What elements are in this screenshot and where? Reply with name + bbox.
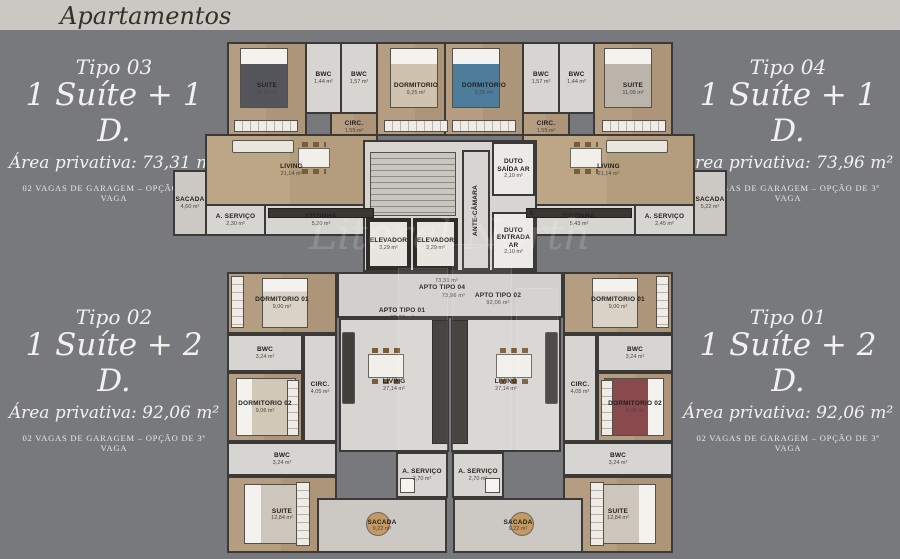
room-bwc-suite-t2: BWC 3,24 m²: [227, 442, 337, 476]
wardrobe: [602, 120, 666, 132]
room-sacada-t2: SACADA 9,22 m²: [317, 498, 447, 553]
room-servico-t4: A. SERVIÇO 2,45 m²: [634, 204, 695, 236]
sofa: [232, 140, 294, 153]
type-config: 1 Suíte + 1 D.: [682, 78, 894, 149]
wardrobe: [287, 380, 299, 436]
type-garage: 02 VAGAS DE GARAGEM – OPÇÃO DE 3ª VAGA: [682, 433, 894, 453]
bed: [240, 48, 288, 108]
bed: [390, 48, 438, 108]
type-name: Tipo 01: [682, 306, 894, 328]
room-sacada-t1: SACADA 9,22 m²: [453, 498, 583, 553]
bed: [452, 48, 500, 108]
type-config: 1 Suíte + 2 D.: [682, 328, 894, 399]
page-title: Apartamentos: [0, 0, 900, 32]
type-name: Tipo 02: [8, 306, 220, 328]
room-bwc-social-t1: BWC 3,24 m²: [597, 334, 673, 372]
type-area: Área privativa: 92,06 m²: [682, 403, 894, 423]
type-name: Tipo 04: [682, 56, 894, 78]
type-config: 1 Suíte + 1 D.: [8, 78, 220, 149]
wardrobe: [590, 482, 604, 546]
bed: [604, 48, 652, 108]
type-block-tipo01: Tipo 01 1 Suíte + 2 D. Área privativa: 9…: [682, 306, 894, 453]
room-circ-t2: CIRC. 4,05 m²: [303, 334, 337, 442]
floor-plan-poster: Apartamentos Tipo 03 1 Suíte + 1 D. Área…: [0, 0, 900, 559]
wardrobe: [452, 120, 516, 132]
room-bwc-suite-t1: BWC 3,24 m²: [563, 442, 673, 476]
watermark-building-bar: [452, 244, 512, 450]
wardrobe: [601, 380, 613, 436]
type-area: Área privativa: 92,06 m²: [8, 403, 220, 423]
wardrobe: [231, 276, 244, 328]
type-block-tipo02: Tipo 02 1 Suíte + 2 D. Área privativa: 9…: [8, 306, 220, 453]
watermark-building-bar: [398, 268, 448, 450]
room-bwc1-t4: BWC 1,57 m²: [522, 42, 560, 114]
type-garage: 02 VAGAS DE GARAGEM – OPÇÃO DE 3ª VAGA: [8, 433, 220, 453]
sofa: [342, 332, 355, 404]
watermark-building-bar: [516, 288, 558, 450]
wardrobe: [384, 120, 448, 132]
wardrobe: [234, 120, 298, 132]
type-config: 1 Suíte + 2 D.: [8, 328, 220, 399]
room-circ-t1: CIRC. 4,05 m²: [563, 334, 597, 442]
wardrobe: [656, 276, 669, 328]
room-sacada-t3: SACADA 4,60 m²: [173, 170, 207, 236]
room-servico-t3: A. SERVIÇO 2,30 m²: [205, 204, 266, 236]
room-bwc1-t3: BWC 1,44 m²: [305, 42, 342, 114]
room-elevador-1: ELEVADOR 3,29 m²: [366, 218, 411, 270]
room-bwc2-t4: BWC 1,44 m²: [558, 42, 595, 114]
room-sacada-t4: SACADA 5,22 m²: [693, 170, 727, 236]
room-duto-saida-ar: DUTO SAÍDA AR 2,10 m²: [492, 142, 535, 196]
type-name: Tipo 03: [8, 56, 220, 78]
room-bwc2-t3: BWC 1,57 m²: [340, 42, 378, 114]
sofa: [606, 140, 668, 153]
wardrobe: [296, 482, 310, 546]
room-bwc-social-t2: BWC 3,24 m²: [227, 334, 303, 372]
header-band: Apartamentos: [0, 0, 900, 30]
stairs-graphic: [370, 152, 456, 216]
